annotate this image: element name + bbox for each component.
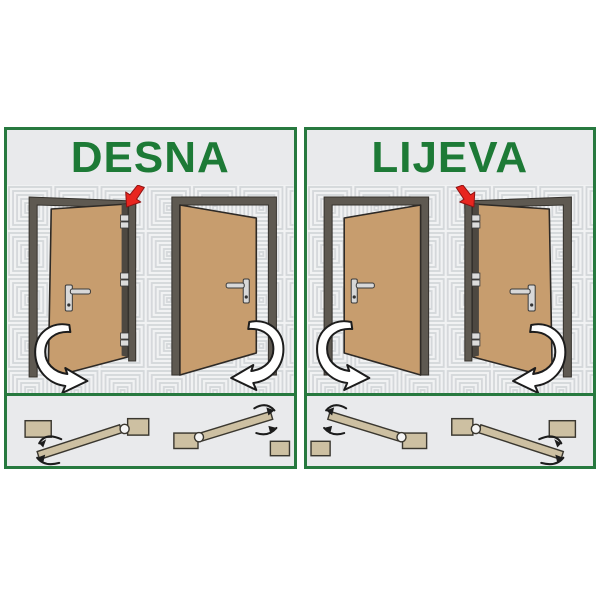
mirrored-plans xyxy=(311,405,575,464)
plan-view-illustration xyxy=(7,396,294,466)
panel-lijeva: LIJEVA xyxy=(304,127,597,469)
panel-desna-title-band: DESNA xyxy=(7,130,294,185)
plan-view-illustration xyxy=(307,396,594,466)
elevation-illustration xyxy=(7,185,294,393)
panel-lijeva-elevation-scene xyxy=(307,185,594,393)
elevation-illustration xyxy=(307,185,594,393)
panel-lijeva-title-band: LIJEVA xyxy=(307,130,594,185)
plan-hinge-right xyxy=(25,419,149,465)
panel-title: LIJEVA xyxy=(371,133,528,183)
panel-desna-plan-strip xyxy=(7,396,294,466)
panel-desna-elevation-scene xyxy=(7,185,294,393)
panel-lijeva-plan-strip xyxy=(307,396,594,466)
plan-hinge-left xyxy=(451,419,575,465)
panel-title: DESNA xyxy=(71,133,230,183)
panel-desna: DESNA xyxy=(4,127,297,469)
plan-hinge-right xyxy=(311,405,427,456)
door-orientation-infographic: DESNA LIJEVA xyxy=(4,127,596,469)
plan-hinge-left xyxy=(174,405,290,456)
